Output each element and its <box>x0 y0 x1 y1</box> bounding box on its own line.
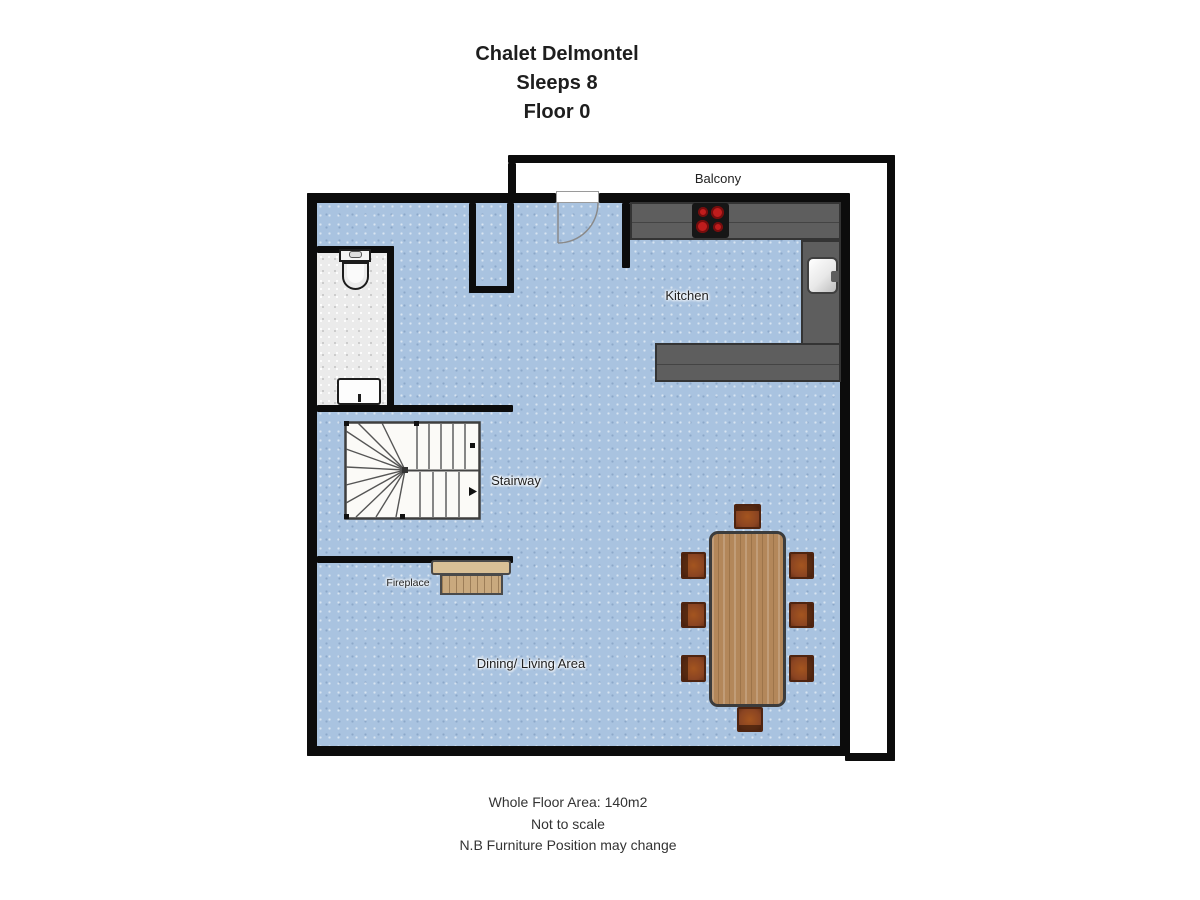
balcony-label: Balcony <box>668 171 768 186</box>
chair <box>681 655 706 682</box>
chair <box>789 552 814 579</box>
kitchen-tap-icon <box>831 271 839 282</box>
stove-hob <box>692 203 729 238</box>
sleeps-subtitle: Sleeps 8 <box>357 69 757 98</box>
dining-table <box>709 531 786 707</box>
fireplace-body <box>440 574 503 595</box>
chair <box>737 707 763 732</box>
page-title: Chalet Delmontel <box>357 40 757 69</box>
stairway-label: Stairway <box>466 473 566 488</box>
chair <box>789 655 814 682</box>
burner-icon <box>711 206 724 219</box>
main-bottom-wall <box>307 746 849 756</box>
hall-wall <box>317 405 513 412</box>
burner-icon <box>698 207 708 217</box>
main-left-wall <box>307 193 317 756</box>
toilet-flush-icon <box>349 251 362 258</box>
toilet-bowl <box>342 262 369 290</box>
stairway-symbol <box>342 419 483 523</box>
chair <box>734 504 761 529</box>
bathroom-sink <box>337 378 381 405</box>
chair <box>681 602 706 628</box>
chair <box>789 602 814 628</box>
plan-header: Chalet Delmontel Sleeps 8 Floor 0 <box>357 40 757 127</box>
kitchen-counter-top <box>630 202 841 240</box>
balcony-right-wall <box>887 155 895 761</box>
fireplace-mantel <box>431 560 511 575</box>
closet-right-wall <box>507 203 514 293</box>
closet-bottom-wall <box>469 286 514 293</box>
scale-note: Not to scale <box>368 814 768 836</box>
chair <box>681 552 706 579</box>
floor-subtitle: Floor 0 <box>357 98 757 127</box>
toilet-bowl-inner <box>347 264 364 283</box>
closet-left-wall <box>469 203 476 293</box>
burner-icon <box>696 220 709 233</box>
dining-living-label: Dining/ Living Area <box>431 656 631 671</box>
balcony-top-wall <box>508 155 895 163</box>
balcony-bottom-wall <box>845 753 895 761</box>
plan-footer: Whole Floor Area: 140m2 Not to scale N.B… <box>368 792 768 857</box>
kitchen-label: Kitchen <box>637 288 737 303</box>
kitchen-sink <box>807 257 838 294</box>
floor-plan-page: Chalet Delmontel Sleeps 8 Floor 0 <box>0 0 1200 900</box>
bathroom-right-wall <box>387 246 394 412</box>
kitchen-partition-wall <box>622 203 630 268</box>
bathroom-tap-icon <box>358 394 361 402</box>
main-right-wall <box>840 193 850 756</box>
fireplace-label: Fireplace <box>368 577 448 589</box>
floor-area-note: Whole Floor Area: 140m2 <box>368 792 768 814</box>
main-top-wall-left <box>307 193 556 203</box>
furniture-note: N.B Furniture Position may change <box>368 835 768 857</box>
door-swing-arc <box>552 200 612 250</box>
kitchen-counter-bottom <box>655 343 841 382</box>
burner-icon <box>713 222 723 232</box>
